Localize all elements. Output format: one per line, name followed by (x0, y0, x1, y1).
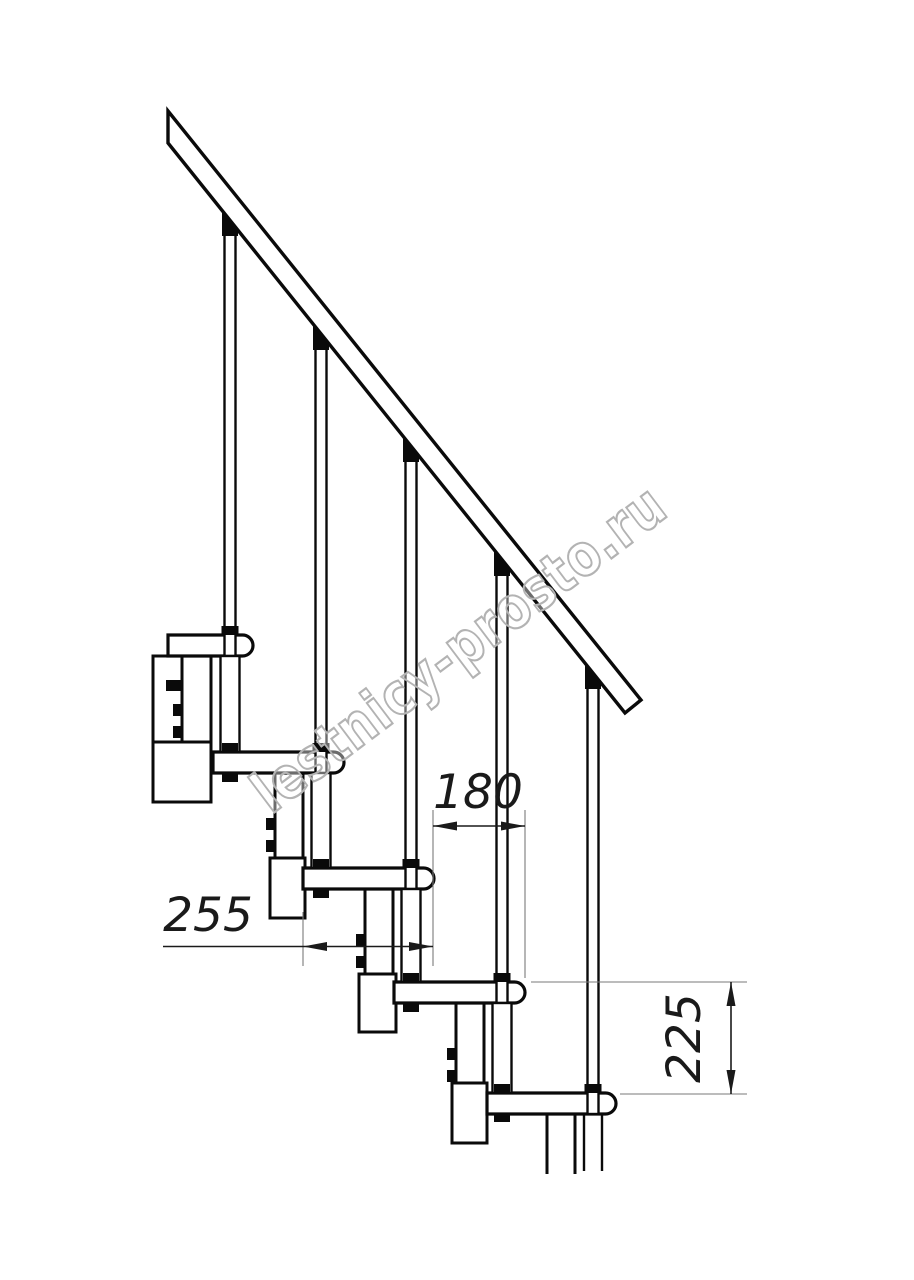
drawing-canvas: 180 255 225 lestnicy-prosto.ru (0, 0, 914, 1280)
column-4 (447, 1003, 487, 1143)
baluster-foot (222, 743, 238, 752)
column-1 (153, 656, 211, 802)
bolt-lug (266, 840, 275, 852)
bolt-lug (356, 956, 365, 968)
tread-collar (222, 626, 239, 635)
arrowhead-top (727, 982, 736, 1006)
baluster-sleeve (402, 889, 421, 982)
staircase-technical-drawing: 180 255 225 lestnicy-prosto.ru (0, 0, 914, 1280)
dimension-label-225: 225 (657, 993, 712, 1083)
bolt-nut (494, 1113, 510, 1122)
mount-tab (166, 680, 182, 691)
arrowhead-left (303, 942, 327, 951)
baluster-1 (221, 210, 240, 782)
baluster-foot (494, 1084, 510, 1093)
tread-1 (168, 635, 253, 656)
dimension-label-180: 180 (433, 765, 523, 820)
tread-collar (585, 1084, 602, 1093)
baluster-foot (313, 859, 329, 868)
column-5 (547, 1114, 575, 1174)
bolt-lug (356, 934, 365, 946)
arrowhead-right (501, 822, 525, 831)
bolt-lug (173, 704, 182, 716)
bolt-lug (266, 818, 275, 830)
baluster-sleeve (493, 1003, 512, 1093)
bolt-lug (447, 1070, 456, 1082)
baluster-foot (403, 973, 419, 982)
dimension-step-rise: 225 (531, 982, 747, 1094)
bolt-lug (447, 1048, 456, 1060)
baluster-rod (225, 234, 236, 656)
dimension-label-255: 255 (163, 888, 253, 943)
bolt-lug (173, 726, 182, 738)
baluster-2 (312, 324, 331, 898)
baluster-5 (584, 663, 602, 1171)
baluster-sleeve (221, 656, 240, 752)
arrowhead-left (433, 822, 457, 831)
arrowhead-bottom (727, 1070, 736, 1094)
column-3 (356, 889, 396, 1032)
tread-collar (403, 859, 420, 868)
tread-collar (494, 973, 511, 982)
bolt-nut (403, 1003, 419, 1012)
baluster-rod (588, 687, 599, 1114)
bolt-nut (222, 773, 238, 782)
dimension-step-run: 180 (433, 765, 525, 978)
bolt-nut (313, 889, 329, 898)
